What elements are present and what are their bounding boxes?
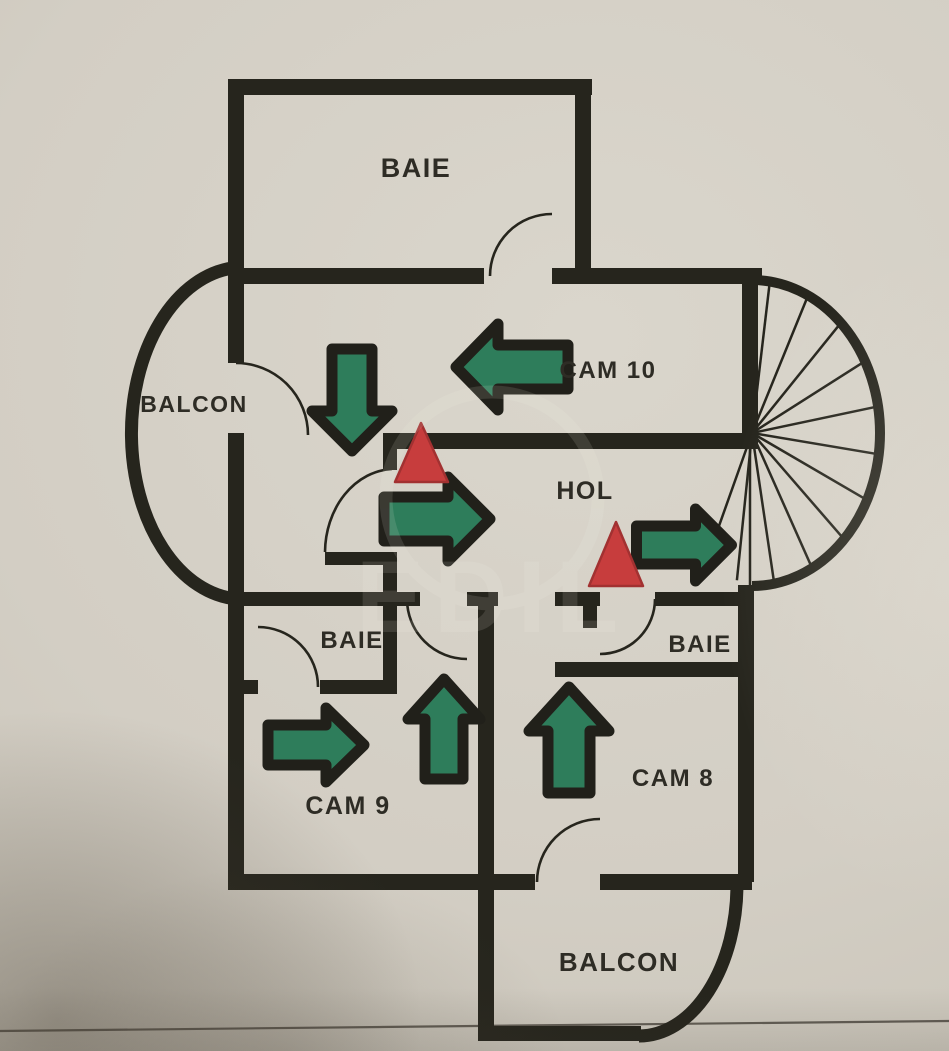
evacuation-arrow-cam9-right <box>268 708 364 782</box>
evacuation-arrow-hol-right <box>384 477 490 561</box>
wall <box>228 79 592 95</box>
wall <box>575 79 591 284</box>
wall <box>383 433 397 470</box>
marker-triangle-1 <box>395 423 448 482</box>
wall <box>583 592 597 628</box>
room-label-balcon-bottom: BALCON <box>559 947 679 977</box>
balcony-railing <box>131 268 237 599</box>
room-label-cam-8: CAM 8 <box>632 765 714 792</box>
door-swing-arc <box>407 599 467 659</box>
door-swing-arc <box>600 599 655 654</box>
floor-plan: EDIL BAIE CAM 10 BALCON HOL BAIE BAIE CA… <box>0 0 949 1051</box>
room-label-baie-right: BAIE <box>668 631 731 658</box>
stair-outline <box>752 280 880 586</box>
wall <box>555 662 752 677</box>
paper-crease-line <box>0 1021 949 1031</box>
plan-geometry <box>0 79 949 1041</box>
evacuation-arrow-cam9-up <box>408 679 480 779</box>
wall <box>742 268 758 441</box>
wall <box>383 553 397 694</box>
evacuation-arrow-cam10-left <box>456 324 568 410</box>
wall <box>655 592 752 606</box>
wall <box>738 585 754 882</box>
wall <box>228 79 244 363</box>
wall <box>244 680 258 694</box>
room-label-baie-left: BAIE <box>320 627 383 654</box>
door-swing-arc <box>490 214 552 276</box>
room-label-cam-9: CAM 9 <box>305 792 390 820</box>
room-label-cam-10: CAM 10 <box>559 357 656 384</box>
wall <box>383 433 758 449</box>
door-swing-arc <box>258 627 318 687</box>
evacuation-arrow-exit-right <box>637 509 732 581</box>
evacuation-arrow-cam8-up <box>529 687 609 793</box>
floor-plan-photo: EDIL BAIE CAM 10 BALCON HOL BAIE BAIE CA… <box>0 0 949 1051</box>
evacuation-arrow-corridor-down <box>312 349 392 451</box>
room-label-balcon-left: BALCON <box>140 391 247 417</box>
wall <box>478 1026 641 1041</box>
wall <box>228 433 244 890</box>
door-swing-arc <box>537 819 600 882</box>
wall <box>478 592 494 1041</box>
wall <box>228 268 484 284</box>
wall <box>600 874 752 890</box>
room-label-hol: HOL <box>556 477 613 505</box>
room-label-baie-top: BAIE <box>381 153 452 183</box>
